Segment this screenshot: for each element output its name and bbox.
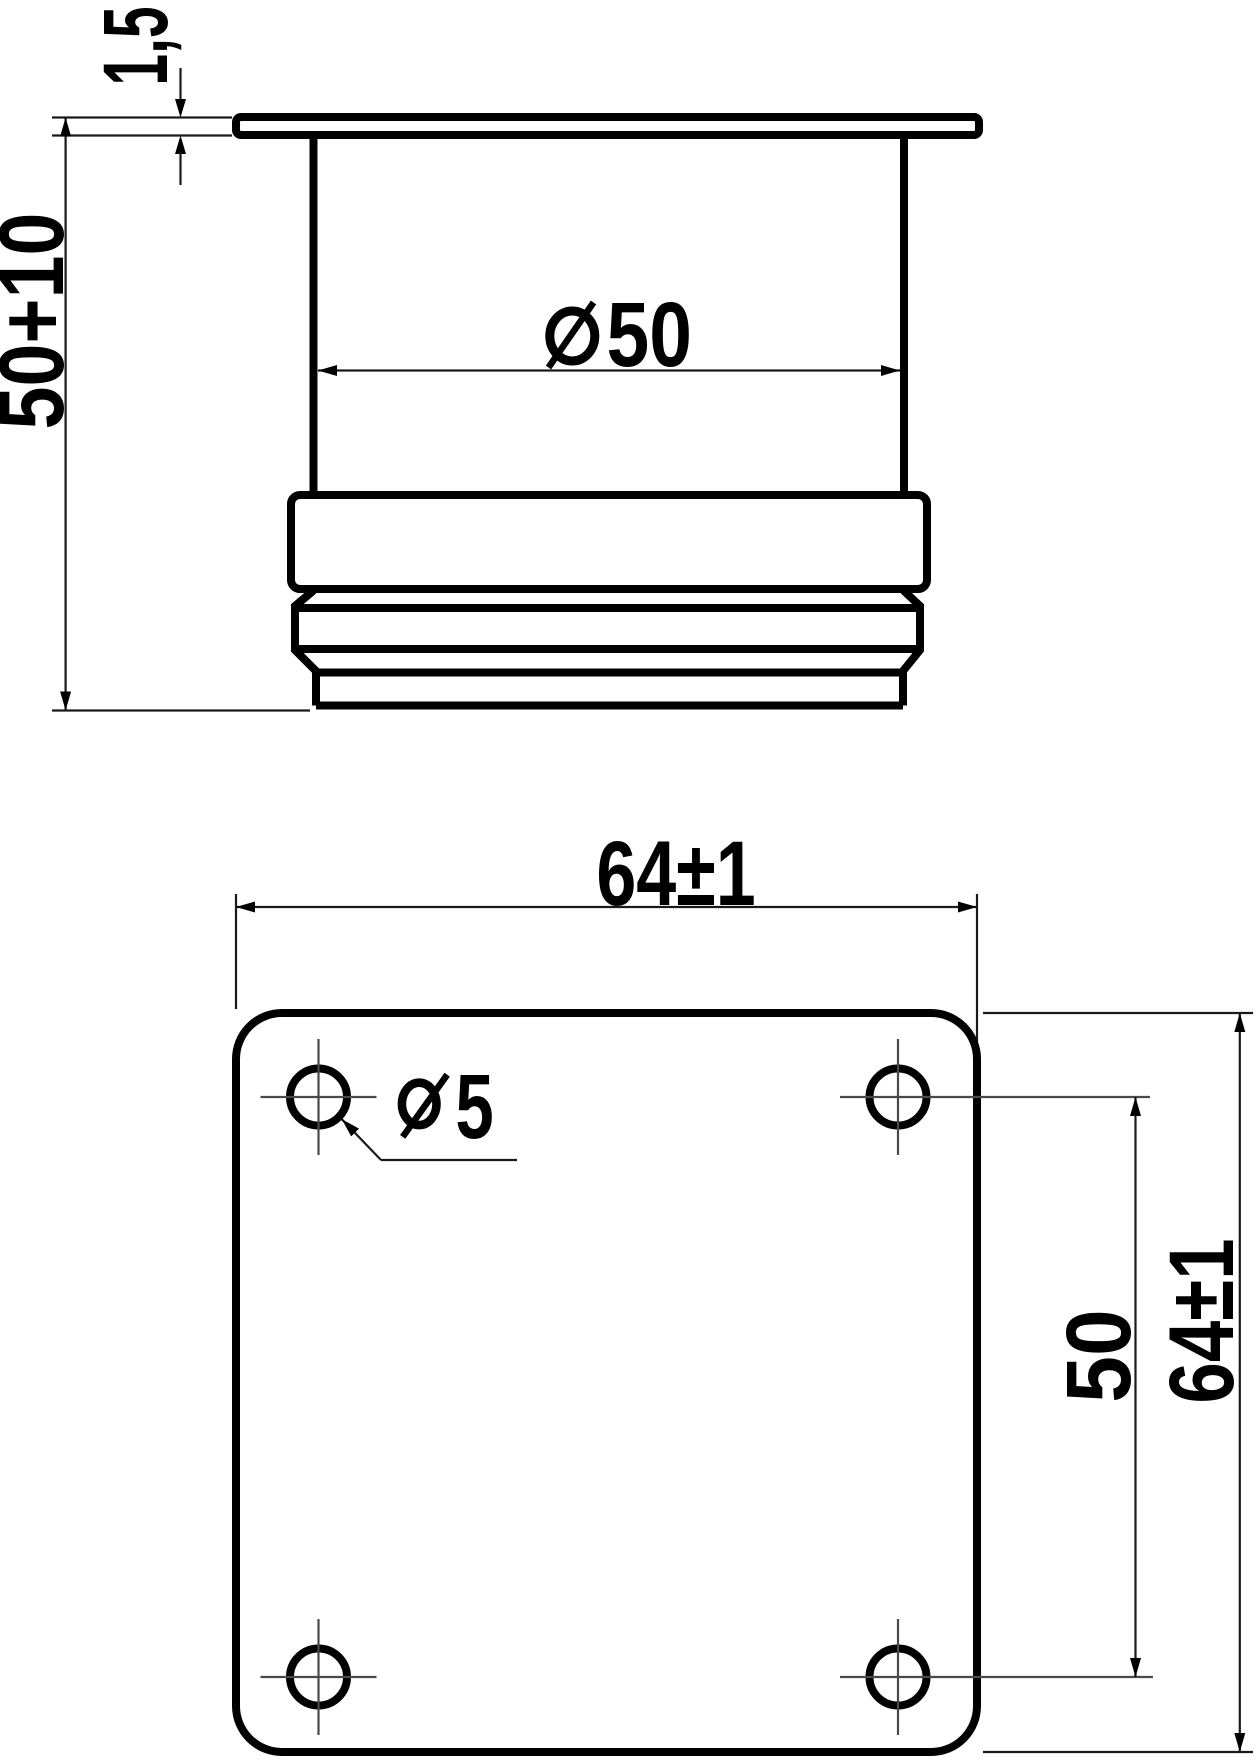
svg-text:50+10: 50+10 (0, 213, 84, 430)
svg-text:64±1: 64±1 (1149, 1238, 1252, 1403)
svg-text:1,5: 1,5 (85, 6, 187, 85)
svg-text:5: 5 (455, 1055, 493, 1158)
svg-text:64±1: 64±1 (596, 823, 755, 926)
svg-text:50: 50 (1046, 1309, 1149, 1403)
svg-text:50: 50 (606, 282, 691, 385)
